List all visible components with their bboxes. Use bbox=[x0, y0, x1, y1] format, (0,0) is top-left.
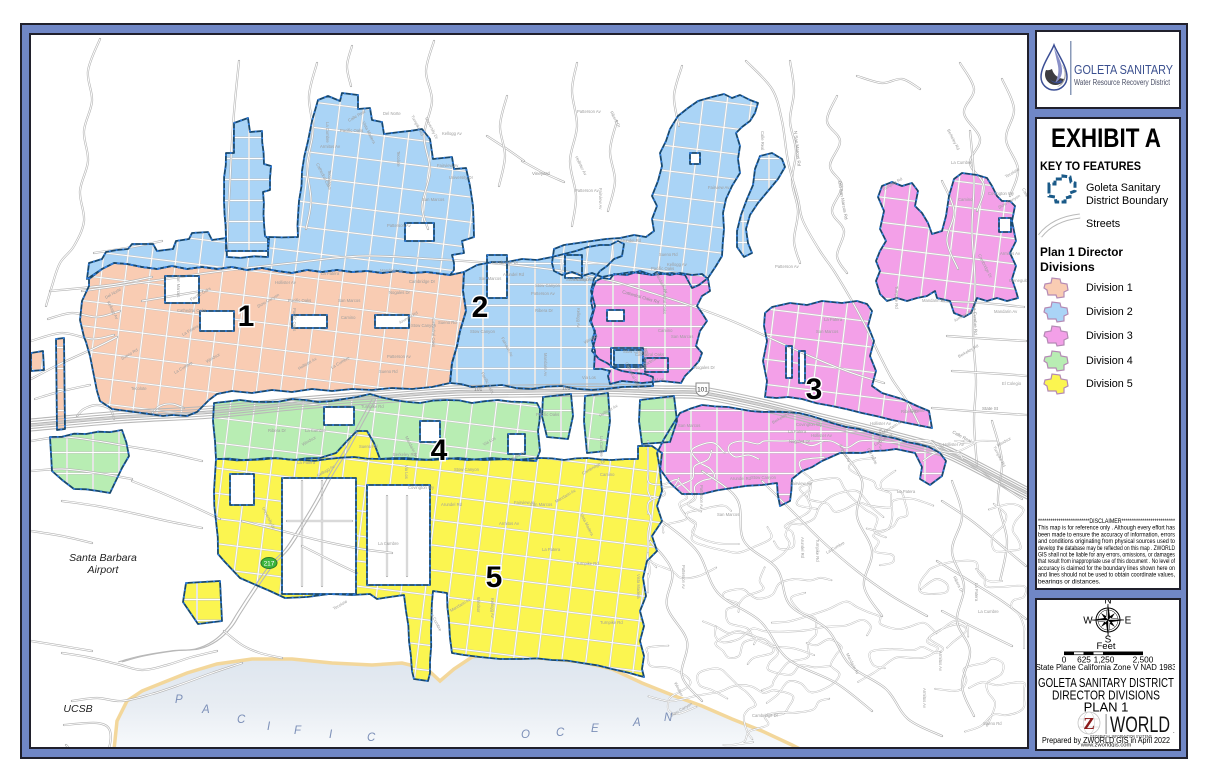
svg-text:101: 101 bbox=[474, 387, 483, 393]
svg-text:E: E bbox=[1125, 616, 1132, 627]
svg-text:Covington Wy: Covington Wy bbox=[988, 191, 1015, 196]
svg-text:Turnpike Rd: Turnpike Rd bbox=[576, 561, 599, 566]
svg-text:Turnpike Rd: Turnpike Rd bbox=[815, 539, 820, 562]
svg-text:Cathedral Oaks: Cathedral Oaks bbox=[635, 352, 664, 357]
svg-text:Z: Z bbox=[1083, 714, 1094, 733]
svg-text:Division 1: Division 1 bbox=[1086, 282, 1133, 294]
svg-text:Via Los: Via Los bbox=[582, 375, 596, 380]
svg-text:Tecolote: Tecolote bbox=[131, 386, 147, 391]
svg-text:A: A bbox=[201, 704, 210, 716]
svg-text:Stow Canyon: Stow Canyon bbox=[411, 323, 437, 328]
svg-text:San Marcos: San Marcos bbox=[422, 197, 444, 202]
svg-text:Nogales Dr: Nogales Dr bbox=[389, 290, 411, 295]
svg-text:Hollister Av: Hollister Av bbox=[275, 280, 297, 285]
svg-text:Plan 1 Director: Plan 1 Director bbox=[1040, 245, 1123, 259]
svg-text:Fairview Av: Fairview Av bbox=[598, 188, 603, 210]
svg-text:UCSB: UCSB bbox=[63, 703, 92, 715]
svg-text:101: 101 bbox=[562, 386, 571, 392]
svg-text:Ribera Dr: Ribera Dr bbox=[901, 409, 920, 414]
svg-text:Cambridge Dr: Cambridge Dr bbox=[409, 279, 436, 284]
svg-text:Nogales Dr: Nogales Dr bbox=[789, 439, 811, 444]
svg-text:San Marcos: San Marcos bbox=[479, 276, 501, 281]
svg-text:Sueno Rd: Sueno Rd bbox=[379, 369, 398, 374]
svg-text:Tecolote: Tecolote bbox=[327, 170, 332, 186]
svg-text:C: C bbox=[237, 714, 246, 726]
svg-text:Arundel Rd: Arundel Rd bbox=[800, 537, 805, 559]
svg-text:University Dr: University Dr bbox=[449, 175, 474, 180]
svg-text:La Patera: La Patera bbox=[897, 489, 916, 494]
svg-text:Stow Canyon: Stow Canyon bbox=[470, 329, 496, 334]
svg-text:Camino: Camino bbox=[958, 197, 973, 202]
svg-text:Camino: Camino bbox=[600, 472, 615, 477]
svg-text:Vineyard: Vineyard bbox=[532, 171, 550, 176]
svg-text:217: 217 bbox=[264, 561, 275, 568]
svg-text:Armitos Av: Armitos Av bbox=[938, 651, 943, 672]
svg-text:4: 4 bbox=[431, 434, 448, 467]
svg-text:Vista Madera: Vista Madera bbox=[636, 574, 641, 599]
svg-text:EXHIBIT A: EXHIBIT A bbox=[1051, 123, 1161, 153]
svg-text:Feet: Feet bbox=[1096, 641, 1115, 652]
svg-text:La Cumbre: La Cumbre bbox=[599, 436, 604, 457]
svg-text:Patterson Av: Patterson Av bbox=[775, 264, 800, 269]
svg-text:3: 3 bbox=[806, 373, 823, 406]
svg-text:5: 5 bbox=[486, 561, 503, 594]
svg-text:Nogales Dr: Nogales Dr bbox=[694, 365, 716, 370]
svg-text:Fairview Av: Fairview Av bbox=[437, 163, 459, 168]
svg-text:Patterson Av: Patterson Av bbox=[681, 565, 686, 590]
svg-text:Division 3: Division 3 bbox=[1086, 330, 1133, 342]
svg-text:San Marcos: San Marcos bbox=[671, 334, 693, 339]
svg-text:Cathedral Oaks: Cathedral Oaks bbox=[662, 285, 667, 314]
svg-text:Fairview Av: Fairview Av bbox=[708, 185, 730, 190]
svg-text:Pacific Oaks: Pacific Oaks bbox=[288, 298, 311, 303]
svg-text:Pacific Oaks: Pacific Oaks bbox=[292, 308, 297, 331]
svg-text:Tecolote: Tecolote bbox=[396, 151, 401, 167]
svg-text:La Cumbre: La Cumbre bbox=[951, 160, 972, 165]
svg-text:La Cumbre: La Cumbre bbox=[378, 541, 399, 546]
svg-text:101: 101 bbox=[697, 387, 708, 394]
svg-text:La Cumbre: La Cumbre bbox=[325, 122, 330, 143]
svg-text:District Boundary: District Boundary bbox=[1086, 195, 1169, 207]
svg-text:Ribera Dr: Ribera Dr bbox=[535, 308, 554, 313]
svg-text:F: F bbox=[294, 725, 302, 737]
svg-text:2: 2 bbox=[472, 291, 489, 324]
svg-text:Stow Canyon: Stow Canyon bbox=[454, 467, 480, 472]
svg-text:Covington Wy: Covington Wy bbox=[408, 485, 435, 490]
svg-text:Patterson Av: Patterson Av bbox=[699, 485, 704, 510]
svg-text:Goleta Sanitary: Goleta Sanitary bbox=[1086, 182, 1161, 194]
svg-text:San Marcos: San Marcos bbox=[530, 502, 552, 507]
svg-text:Windsor: Windsor bbox=[476, 597, 481, 613]
svg-text:N: N bbox=[1104, 600, 1111, 607]
svg-text:Cambridge Dr: Cambridge Dr bbox=[492, 260, 519, 265]
svg-text:San Marcos: San Marcos bbox=[717, 512, 739, 517]
svg-text:Division 5: Division 5 bbox=[1086, 378, 1133, 390]
svg-text:P: P bbox=[175, 694, 183, 706]
svg-text:1: 1 bbox=[238, 300, 255, 333]
svg-text:Arundel Rd: Arundel Rd bbox=[730, 476, 752, 481]
svg-text:Mandarin Av: Mandarin Av bbox=[380, 268, 404, 273]
svg-text:La Patera: La Patera bbox=[321, 271, 340, 276]
svg-text:Pacific Oaks: Pacific Oaks bbox=[651, 266, 674, 271]
svg-text:State St: State St bbox=[982, 406, 999, 411]
svg-text:Turnpike Rd: Turnpike Rd bbox=[894, 286, 899, 309]
svg-text:Kellogg Av: Kellogg Av bbox=[490, 598, 495, 619]
svg-text:E: E bbox=[591, 723, 599, 735]
svg-text:La Patera: La Patera bbox=[542, 547, 561, 552]
svg-text:Arundel Rd: Arundel Rd bbox=[620, 238, 642, 243]
svg-text:Arundel Rd: Arundel Rd bbox=[503, 272, 525, 277]
svg-text:Via Los: Via Los bbox=[404, 465, 409, 479]
svg-text:La Patera: La Patera bbox=[297, 460, 316, 465]
svg-text:Division 4: Division 4 bbox=[1086, 355, 1133, 367]
svg-text:Armitos Av: Armitos Av bbox=[320, 144, 341, 149]
svg-text:La Patera: La Patera bbox=[824, 317, 843, 322]
svg-text:Berkeley Rd: Berkeley Rd bbox=[393, 452, 416, 457]
svg-text:Stow Canyon: Stow Canyon bbox=[751, 475, 777, 480]
svg-text:Ribera Dr: Ribera Dr bbox=[268, 428, 287, 433]
svg-text:San Marcos: San Marcos bbox=[816, 329, 838, 334]
svg-text:Cieneguitas: Cieneguitas bbox=[1009, 278, 1027, 283]
svg-text:Armitos Av: Armitos Av bbox=[922, 688, 927, 709]
svg-text:Water Resource Recovery Distri: Water Resource Recovery District bbox=[1074, 77, 1171, 87]
svg-text:Hollister Av: Hollister Av bbox=[811, 433, 833, 438]
svg-text:Streets: Streets bbox=[1086, 218, 1121, 230]
svg-text:N: N bbox=[664, 712, 673, 724]
svg-text:Divisions: Divisions bbox=[1040, 260, 1095, 274]
svg-text:Cathedral Oaks: Cathedral Oaks bbox=[177, 308, 206, 313]
svg-text:Patterson Av: Patterson Av bbox=[387, 223, 412, 228]
svg-text:Kellogg Av: Kellogg Av bbox=[442, 131, 463, 136]
svg-text:Del Norte: Del Norte bbox=[383, 111, 401, 116]
svg-text:O: O bbox=[521, 729, 530, 741]
svg-text:GOLETA SANITARY: GOLETA SANITARY bbox=[1074, 62, 1173, 77]
svg-text:Mandarin Av: Mandarin Av bbox=[922, 298, 946, 303]
svg-text:Patterson Av: Patterson Av bbox=[575, 188, 600, 193]
svg-text:Pacific Oaks: Pacific Oaks bbox=[536, 412, 559, 417]
svg-text:La Cumbre: La Cumbre bbox=[305, 428, 326, 433]
svg-text:Sueno Rd: Sueno Rd bbox=[438, 320, 457, 325]
svg-text:C: C bbox=[367, 732, 376, 744]
svg-text:C: C bbox=[556, 727, 565, 739]
svg-text:El Colegio: El Colegio bbox=[1002, 381, 1022, 386]
svg-text:bearings or distances.: bearings or distances. bbox=[1038, 578, 1101, 584]
svg-text:W: W bbox=[1083, 616, 1093, 627]
svg-text:Sueno Rd: Sueno Rd bbox=[659, 252, 678, 257]
svg-text:Mandarin Av: Mandarin Av bbox=[543, 353, 548, 377]
svg-text:KEY TO FEATURES: KEY TO FEATURES bbox=[1040, 159, 1141, 173]
svg-text:Camino: Camino bbox=[341, 315, 356, 320]
svg-text:Division 2: Division 2 bbox=[1086, 306, 1133, 318]
svg-text:Turnpike Rd: Turnpike Rd bbox=[600, 620, 623, 625]
svg-text:Airport: Airport bbox=[87, 564, 120, 576]
svg-text:Calle Real: Calle Real bbox=[760, 131, 765, 150]
svg-text:Stow Canyon: Stow Canyon bbox=[535, 283, 561, 288]
svg-text:La Patera: La Patera bbox=[788, 429, 807, 434]
svg-text:Patterson Av: Patterson Av bbox=[577, 109, 602, 114]
svg-text:Armitos Av: Armitos Av bbox=[1000, 251, 1021, 256]
svg-text:Santa Barbara: Santa Barbara bbox=[69, 552, 137, 564]
svg-text:San Marcos: San Marcos bbox=[338, 298, 360, 303]
svg-text:State Plane California Zone V: State Plane California Zone V NAD 1983 bbox=[1037, 663, 1175, 672]
svg-text:Patterson Av: Patterson Av bbox=[531, 291, 556, 296]
svg-text:Via Los: Via Los bbox=[650, 377, 664, 382]
svg-text:A: A bbox=[632, 717, 641, 729]
svg-text:San Marcos: San Marcos bbox=[176, 275, 181, 297]
svg-text:Hollister Av: Hollister Av bbox=[943, 442, 965, 447]
svg-text:Covington Wy: Covington Wy bbox=[796, 422, 823, 427]
svg-text:www.zworldgis.com: www.zworldgis.com bbox=[1080, 743, 1132, 747]
svg-text:La Patera: La Patera bbox=[974, 583, 979, 602]
svg-text:Pacific Oaks: Pacific Oaks bbox=[340, 128, 363, 133]
svg-text:Armitos Av: Armitos Av bbox=[573, 277, 594, 282]
svg-text:Sueno Rd: Sueno Rd bbox=[983, 721, 1002, 726]
svg-text:Kellogg Av: Kellogg Av bbox=[576, 308, 581, 329]
svg-text:Fairview Av: Fairview Av bbox=[790, 481, 812, 486]
svg-text:La Cumbre: La Cumbre bbox=[978, 609, 999, 614]
svg-text:.: . bbox=[1173, 729, 1175, 735]
svg-text:San Marcos: San Marcos bbox=[678, 423, 700, 428]
svg-text:Camino: Camino bbox=[658, 328, 673, 333]
svg-text:Sueno Rd: Sueno Rd bbox=[359, 444, 378, 449]
svg-text:Cambridge Dr: Cambridge Dr bbox=[752, 713, 779, 718]
svg-text:Turnpike Rd: Turnpike Rd bbox=[361, 404, 384, 409]
svg-text:Mandarin Av: Mandarin Av bbox=[994, 309, 1018, 314]
svg-text:Patterson Av: Patterson Av bbox=[387, 354, 412, 359]
svg-text:Arundel Rd: Arundel Rd bbox=[441, 502, 463, 507]
svg-text:Armitos Av: Armitos Av bbox=[499, 521, 520, 526]
